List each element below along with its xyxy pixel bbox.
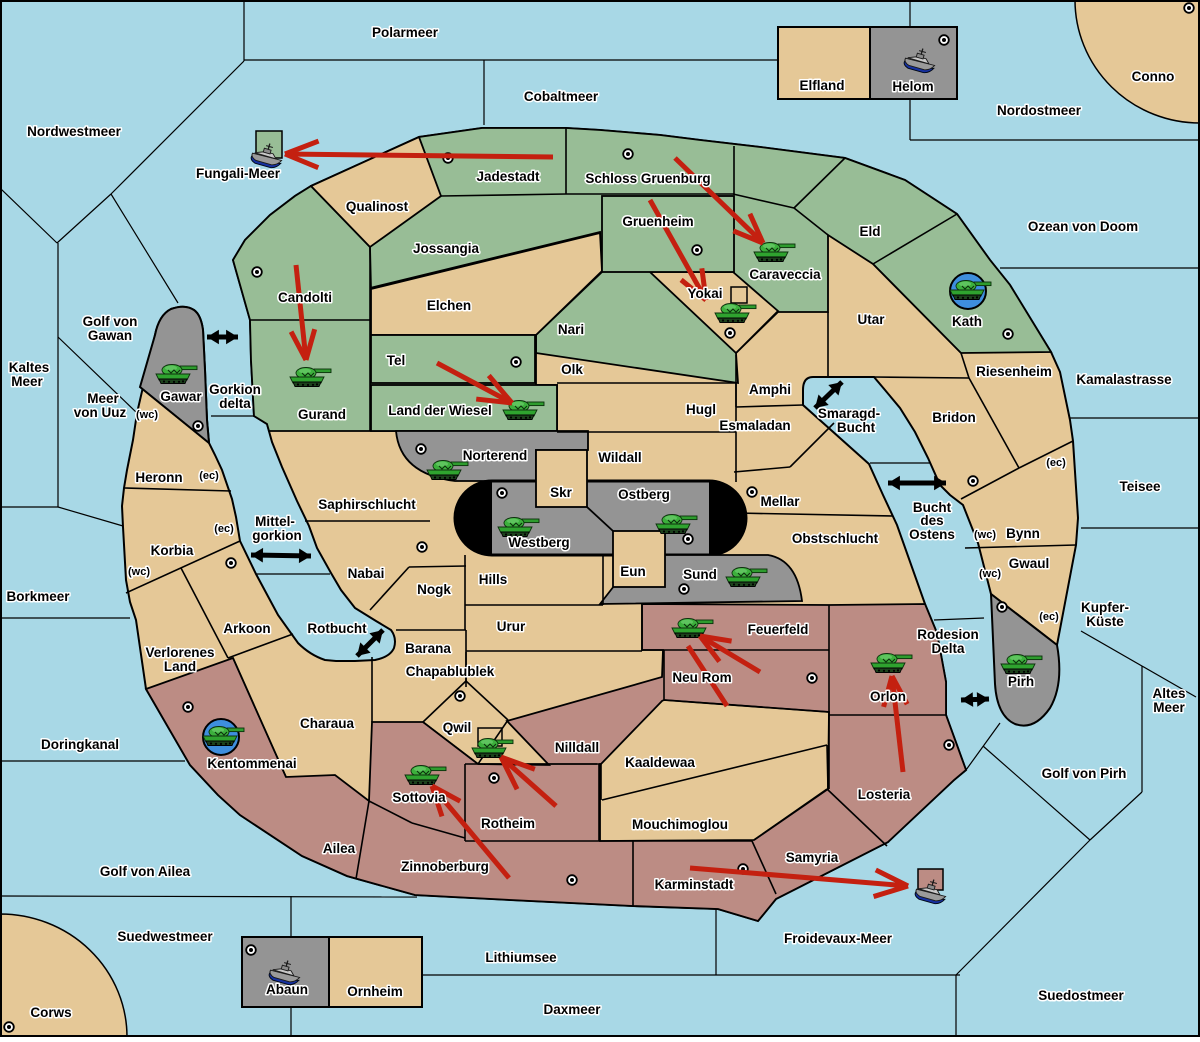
svg-text:Wildall: Wildall	[598, 450, 641, 465]
svg-text:Suedostmeer: Suedostmeer	[1038, 988, 1124, 1003]
svg-text:Helom: Helom	[892, 79, 933, 94]
svg-text:Nordostmeer: Nordostmeer	[997, 103, 1082, 118]
svg-text:Pirh: Pirh	[1008, 674, 1034, 689]
svg-text:(wc): (wc)	[974, 529, 996, 541]
svg-text:Ornheim: Ornheim	[347, 984, 403, 999]
svg-text:Meer: Meer	[1153, 700, 1185, 715]
svg-text:Nabai: Nabai	[348, 566, 385, 581]
svg-text:Bucht: Bucht	[837, 420, 876, 435]
svg-text:Ailea: Ailea	[323, 841, 356, 856]
svg-text:Ostberg: Ostberg	[618, 487, 670, 502]
svg-text:Neu Rom: Neu Rom	[672, 670, 731, 685]
svg-text:Elchen: Elchen	[427, 298, 471, 313]
svg-text:Tel: Tel	[387, 353, 406, 368]
svg-text:Smaragd-: Smaragd-	[818, 406, 880, 421]
svg-text:Mouchimoglou: Mouchimoglou	[632, 817, 728, 832]
svg-text:Kath: Kath	[952, 314, 982, 329]
svg-text:Kupfer-: Kupfer-	[1081, 600, 1129, 615]
svg-text:Orlon: Orlon	[870, 689, 906, 704]
svg-text:Urur: Urur	[497, 619, 526, 634]
svg-text:Charaua: Charaua	[300, 716, 355, 731]
svg-text:Bynn: Bynn	[1006, 526, 1040, 541]
svg-text:Froidevaux-Meer: Froidevaux-Meer	[784, 931, 893, 946]
svg-text:Nordwestmeer: Nordwestmeer	[27, 124, 122, 139]
svg-text:Qwil: Qwil	[443, 720, 472, 735]
svg-text:Bridon: Bridon	[932, 410, 976, 425]
svg-text:Mellar: Mellar	[760, 494, 800, 509]
svg-text:Obstschlucht: Obstschlucht	[792, 531, 879, 546]
svg-text:Caraveccia: Caraveccia	[749, 267, 821, 282]
svg-text:Golf von Ailea: Golf von Ailea	[100, 864, 191, 879]
svg-text:Jadestadt: Jadestadt	[476, 169, 540, 184]
svg-text:Zinnoberburg: Zinnoberburg	[401, 859, 489, 874]
svg-text:Delta: Delta	[931, 641, 965, 656]
svg-text:Hills: Hills	[479, 572, 508, 587]
svg-text:Polarmeer: Polarmeer	[372, 25, 439, 40]
svg-text:(wc): (wc)	[128, 566, 150, 578]
svg-text:Karminstadt: Karminstadt	[655, 877, 734, 892]
svg-text:Ozean von Doom: Ozean von Doom	[1028, 219, 1138, 234]
svg-text:Kentommenai: Kentommenai	[207, 756, 296, 771]
svg-text:Samyria: Samyria	[786, 850, 839, 865]
svg-text:Corws: Corws	[30, 1005, 71, 1020]
svg-text:Saphirschlucht: Saphirschlucht	[318, 497, 416, 512]
svg-text:Suedwestmeer: Suedwestmeer	[117, 929, 213, 944]
svg-text:Arkoon: Arkoon	[223, 621, 270, 636]
svg-text:Golf von Pirh: Golf von Pirh	[1042, 766, 1127, 781]
svg-text:Riesenheim: Riesenheim	[976, 364, 1052, 379]
svg-text:Skr: Skr	[550, 485, 573, 500]
svg-text:Kaaldewaa: Kaaldewaa	[625, 755, 695, 770]
svg-text:Esmaladan: Esmaladan	[719, 418, 790, 433]
svg-text:Jossangia: Jossangia	[413, 241, 480, 256]
svg-text:Fungali-Meer: Fungali-Meer	[196, 166, 281, 181]
svg-text:Barana: Barana	[405, 641, 451, 656]
svg-text:des: des	[920, 513, 943, 528]
svg-text:Heronn: Heronn	[135, 470, 182, 485]
svg-text:Eld: Eld	[859, 224, 880, 239]
svg-text:Rodesion: Rodesion	[917, 627, 979, 642]
svg-text:Golf von: Golf von	[83, 314, 138, 329]
svg-text:Olk: Olk	[561, 362, 583, 377]
svg-text:Sund: Sund	[683, 567, 717, 582]
svg-text:Feuerfeld: Feuerfeld	[748, 622, 809, 637]
svg-text:Rotbucht: Rotbucht	[307, 621, 367, 636]
svg-text:Utar: Utar	[857, 312, 885, 327]
svg-text:Küste: Küste	[1086, 614, 1124, 629]
svg-text:(wc): (wc)	[979, 568, 1001, 580]
svg-text:Gurand: Gurand	[298, 407, 346, 422]
svg-text:(wc): (wc)	[136, 409, 158, 421]
svg-text:Nilldall: Nilldall	[555, 740, 599, 755]
svg-text:Kaltes: Kaltes	[9, 360, 50, 375]
svg-text:Daxmeer: Daxmeer	[543, 1002, 601, 1017]
svg-text:Gruenheim: Gruenheim	[622, 214, 693, 229]
svg-text:Meer: Meer	[87, 391, 119, 406]
svg-text:(ec): (ec)	[1039, 611, 1059, 623]
svg-text:delta: delta	[219, 396, 251, 411]
svg-text:Land der Wiesel: Land der Wiesel	[388, 403, 491, 418]
svg-text:Korbia: Korbia	[151, 543, 194, 558]
svg-text:Sottovia: Sottovia	[392, 790, 446, 805]
svg-text:Gorkion: Gorkion	[209, 382, 261, 397]
svg-text:Rotheim: Rotheim	[481, 816, 535, 831]
svg-text:Nari: Nari	[558, 322, 584, 337]
svg-text:Yokai: Yokai	[687, 286, 722, 301]
svg-text:Hugl: Hugl	[686, 402, 716, 417]
svg-text:Norterend: Norterend	[463, 448, 528, 463]
svg-text:Schloss Gruenburg: Schloss Gruenburg	[585, 171, 710, 186]
svg-text:Meer: Meer	[11, 374, 43, 389]
svg-text:von Uuz: von Uuz	[74, 405, 127, 420]
svg-text:Losteria: Losteria	[858, 787, 911, 802]
svg-text:Gawan: Gawan	[88, 328, 132, 343]
svg-text:Gawar: Gawar	[160, 389, 202, 404]
svg-text:Ostens: Ostens	[909, 527, 955, 542]
svg-text:Abaun: Abaun	[266, 982, 308, 997]
svg-text:Cobaltmeer: Cobaltmeer	[524, 89, 599, 104]
svg-text:Gwaul: Gwaul	[1009, 556, 1050, 571]
svg-text:Amphi: Amphi	[749, 382, 791, 397]
svg-text:gorkion: gorkion	[252, 528, 302, 543]
svg-text:Doringkanal: Doringkanal	[41, 737, 119, 752]
svg-text:Teisee: Teisee	[1119, 479, 1161, 494]
svg-text:Elfland: Elfland	[799, 78, 844, 93]
svg-text:Conno: Conno	[1132, 69, 1175, 84]
svg-text:Borkmeer: Borkmeer	[6, 589, 70, 604]
svg-text:(ec): (ec)	[199, 470, 219, 482]
svg-text:Altes: Altes	[1152, 686, 1185, 701]
svg-text:(ec): (ec)	[1046, 457, 1066, 469]
svg-text:Verlorenes: Verlorenes	[145, 645, 214, 660]
svg-text:Westberg: Westberg	[508, 535, 569, 550]
svg-text:Qualinost: Qualinost	[346, 199, 409, 214]
svg-text:Lithiumsee: Lithiumsee	[485, 950, 557, 965]
svg-text:Candolti: Candolti	[278, 290, 332, 305]
svg-text:Eun: Eun	[620, 564, 646, 579]
svg-text:Kamalastrasse: Kamalastrasse	[1076, 372, 1172, 387]
svg-text:Chapablublek: Chapablublek	[406, 664, 495, 679]
svg-text:(ec): (ec)	[214, 523, 234, 535]
svg-text:Mittel-: Mittel-	[255, 514, 295, 529]
svg-text:Nogk: Nogk	[417, 582, 451, 597]
svg-text:Land: Land	[164, 659, 196, 674]
